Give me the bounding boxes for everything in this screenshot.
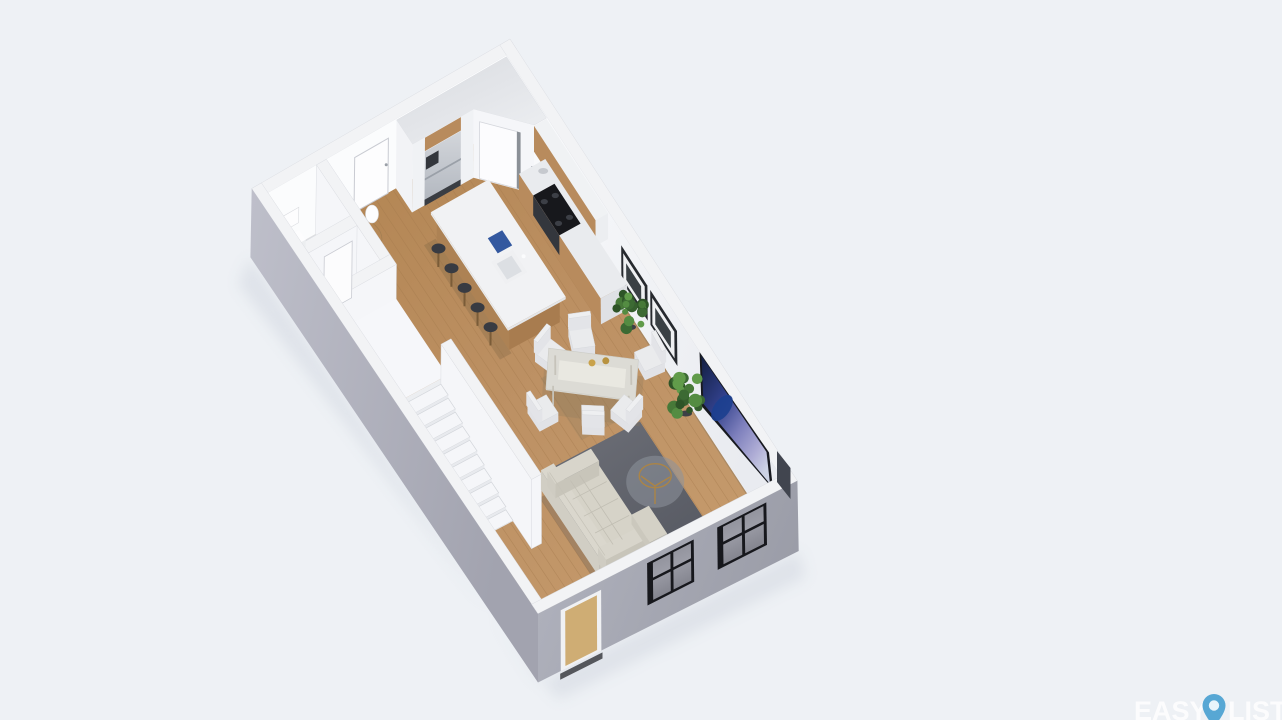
svg-text:LIST: LIST bbox=[1228, 696, 1282, 720]
svg-text:EASY: EASY bbox=[1134, 696, 1208, 720]
